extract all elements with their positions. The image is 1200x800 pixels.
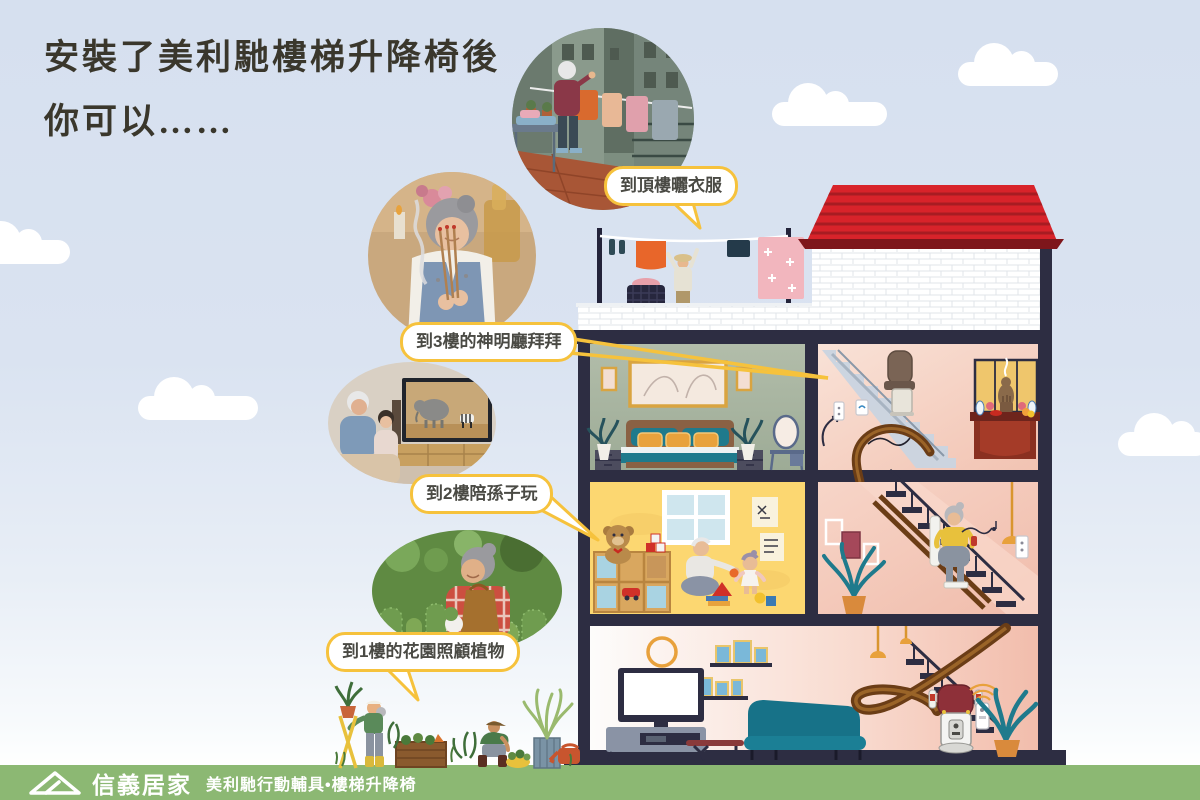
- vegetable-crate: [396, 733, 446, 767]
- headline: 安裝了美利馳樓梯升降椅後 你可以……: [44, 26, 500, 153]
- callout-playroom: 到2樓陪孫子玩: [410, 474, 553, 514]
- second-floor-playroom: [590, 482, 805, 614]
- callout-garden-label: 到1樓的花園照顧植物: [342, 642, 504, 661]
- third-floor-bedroom: [588, 344, 805, 470]
- headline-line1: 安裝了美利馳樓梯升降椅後: [44, 26, 500, 90]
- callout-rooftop-label: 到頂樓曬衣服: [620, 176, 722, 195]
- garden-scene: [325, 675, 585, 800]
- third-floor-shrine: [818, 344, 1040, 482]
- sinyi-logo-icon: [28, 770, 82, 796]
- tv-and-cabinet: [606, 668, 706, 760]
- second-floor-stairwell: [818, 470, 1038, 614]
- cloud: [1118, 432, 1200, 456]
- cloud: [138, 396, 258, 420]
- footer-brand: 信義居家: [92, 766, 192, 800]
- callout-playroom-label: 到2樓陪孫子玩: [426, 484, 537, 503]
- gardening-grandfather: [478, 721, 509, 767]
- footer-bar: 信義居家 美利馳行動輔具•樓梯升降椅: [0, 765, 1200, 800]
- toy-shelf: [594, 552, 670, 612]
- cloud: [0, 240, 70, 264]
- person-hanging-laundry: [668, 250, 697, 312]
- cloud: [958, 62, 1058, 86]
- callout-rooftop: 到頂樓曬衣服: [604, 166, 738, 206]
- headline-line2: 你可以……: [44, 90, 500, 154]
- poster: { "title": { "line1": "安裝了美利馳樓梯升降椅後", "l…: [0, 0, 1200, 800]
- bed: [621, 420, 739, 468]
- window: [662, 490, 730, 545]
- cloud: [772, 102, 887, 126]
- house-cross-section: [555, 175, 1070, 775]
- altar: [970, 358, 1040, 459]
- first-floor-living-room: [590, 626, 1038, 760]
- plant-sprig: [389, 722, 399, 748]
- photo-watching-tv-with-grandchild: [328, 362, 496, 484]
- callout-garden: 到1樓的花園照顧植物: [326, 632, 520, 672]
- foundation-slab: [564, 750, 1066, 766]
- seedling-basket: [506, 750, 531, 769]
- rooftop-laundry-scene: [576, 228, 816, 334]
- gardening-grandmother: [350, 701, 386, 767]
- callout-shrine: 到3樓的神明廳拜拜: [400, 322, 577, 362]
- callout-shrine-label: 到3樓的神明廳拜拜: [416, 332, 561, 351]
- plant-stand: [336, 682, 362, 768]
- toy-ball: [730, 569, 739, 578]
- penthouse: [798, 185, 1064, 338]
- photo-incense-offering: [368, 172, 536, 340]
